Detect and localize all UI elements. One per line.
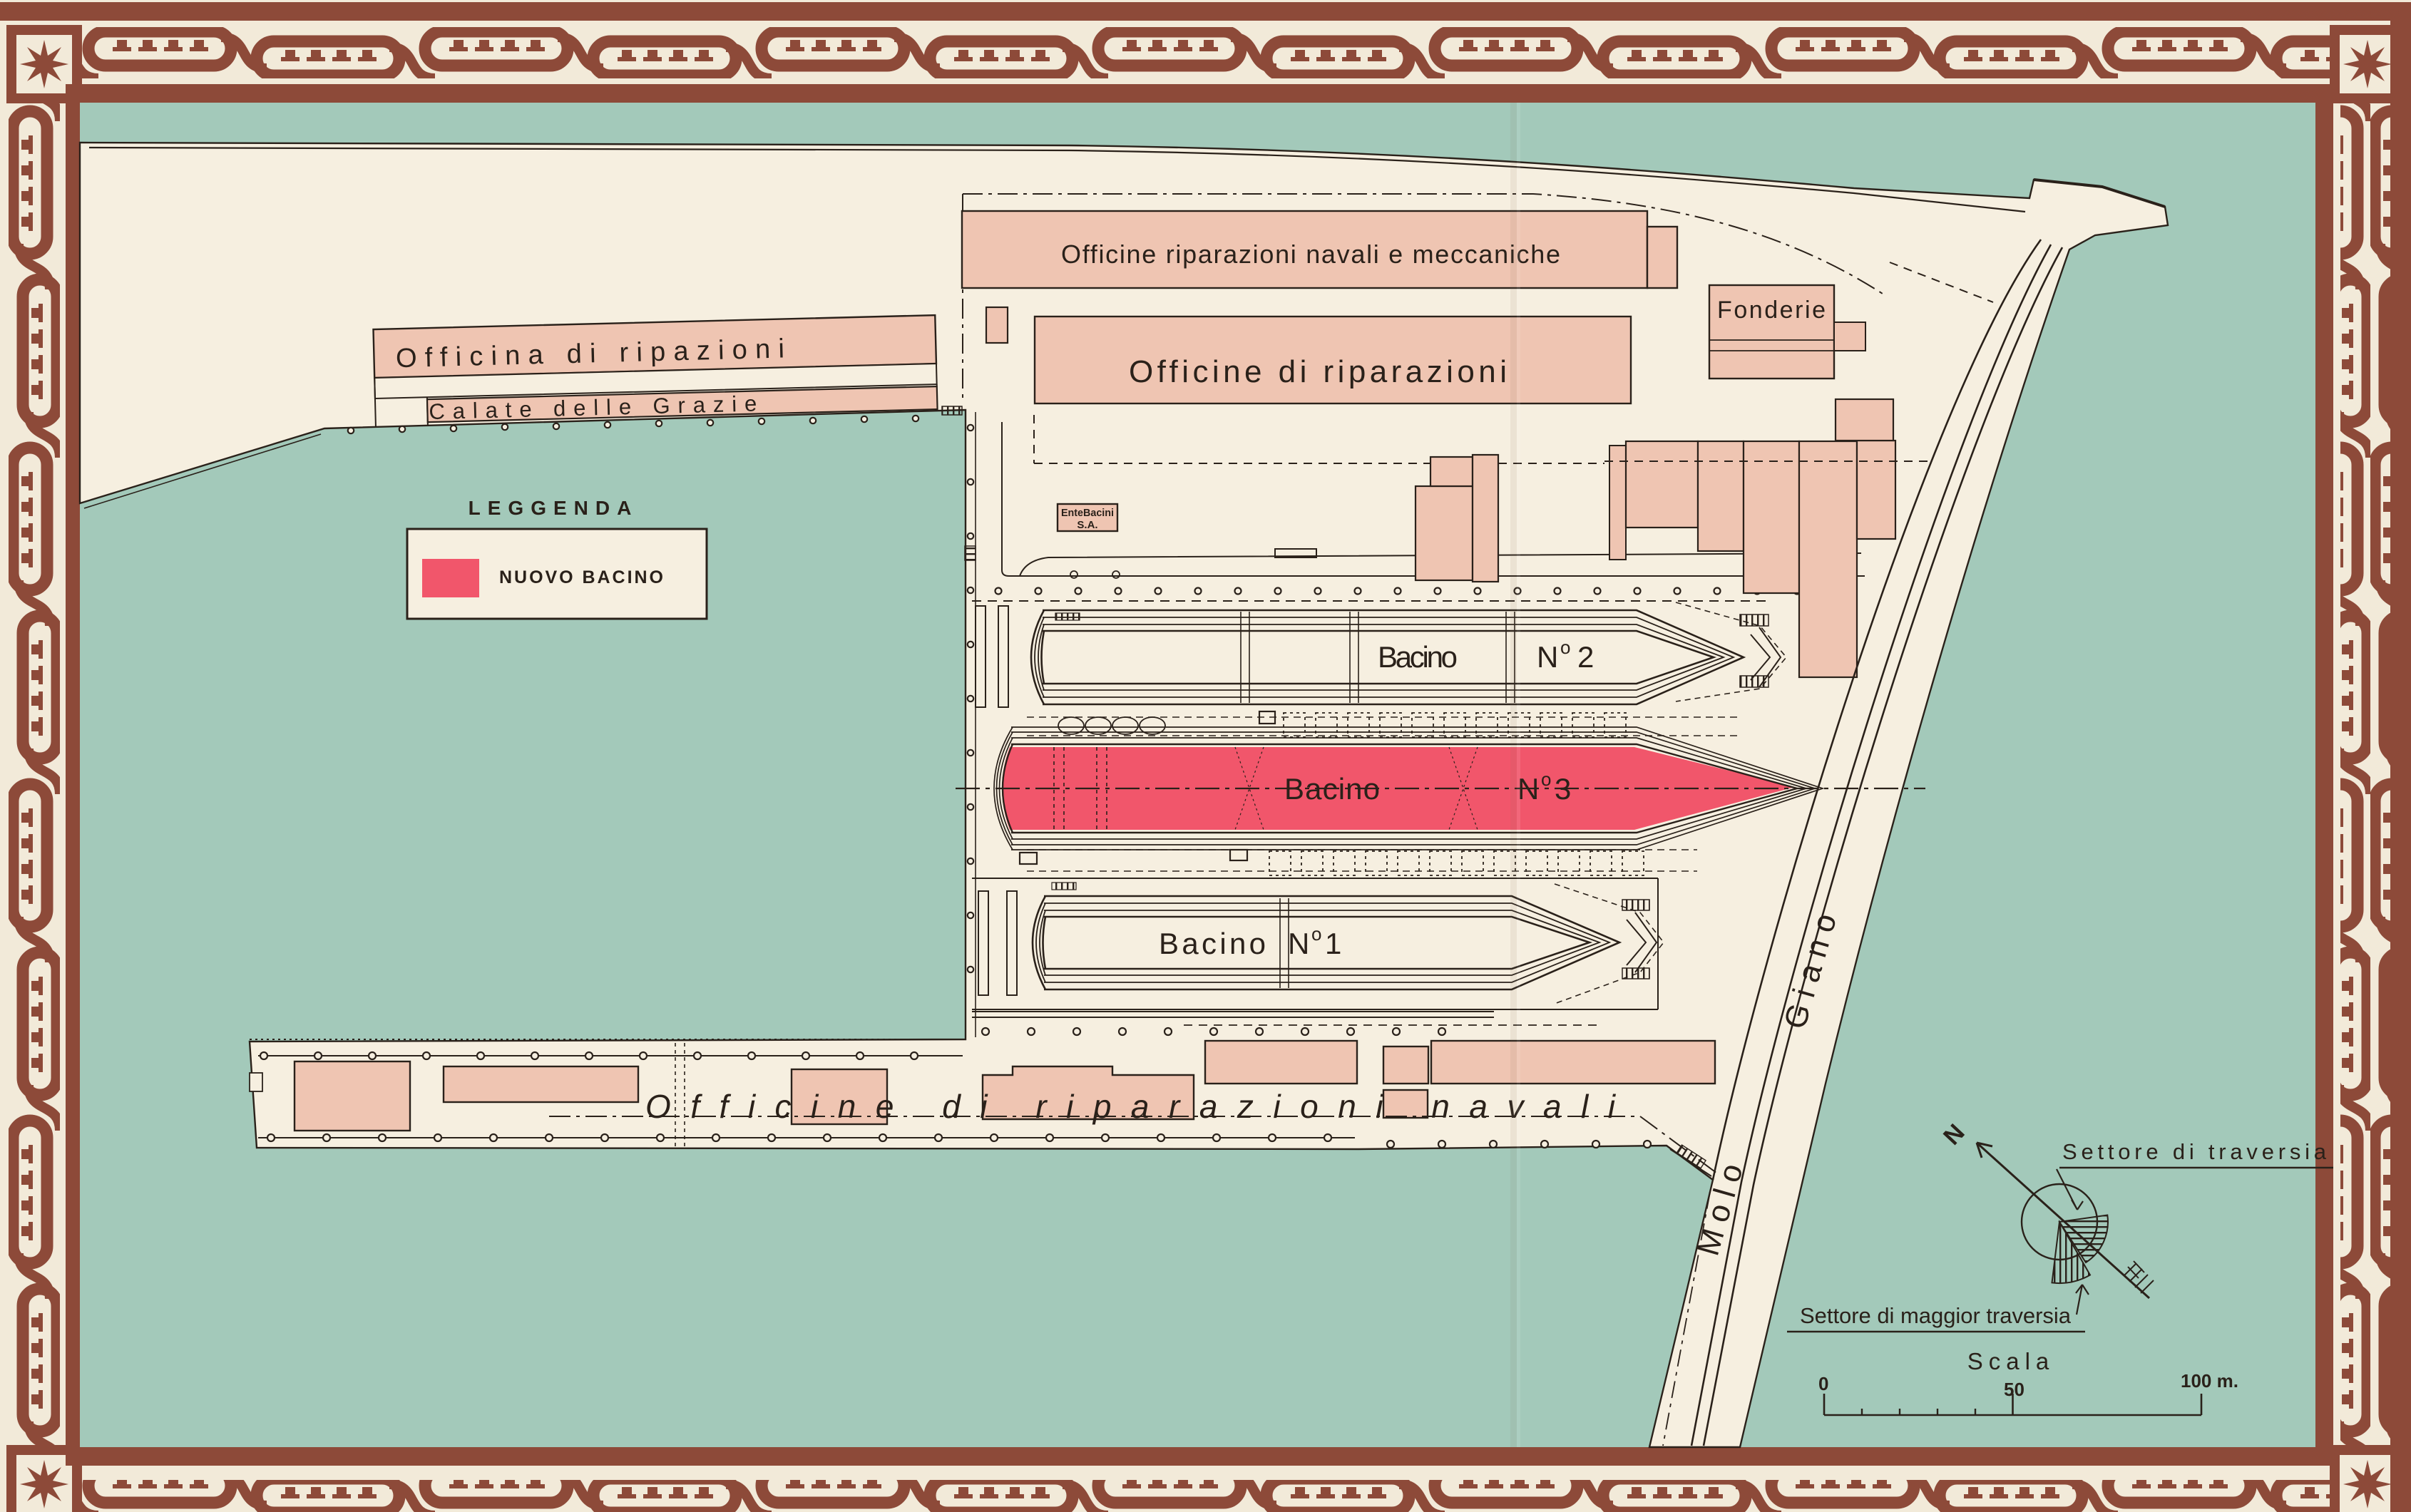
svg-text:Fonderie: Fonderie: [1717, 297, 1826, 324]
svg-text:2: 2: [1577, 640, 1594, 674]
svg-text:3: 3: [1555, 772, 1571, 806]
svg-text:Bacino: Bacino: [1284, 772, 1380, 806]
svg-text:N: N: [1537, 640, 1558, 674]
svg-text:o: o: [1541, 768, 1551, 790]
svg-text:Officine di riparazioni: Officine di riparazioni: [1129, 354, 1507, 389]
svg-text:Officine di riparazioni navali: Officine di riparazioni navali: [645, 1088, 1617, 1125]
svg-text:Bacino: Bacino: [1159, 927, 1266, 960]
svg-text:100 m.: 100 m.: [2181, 1370, 2238, 1392]
svg-text:Bacino: Bacino: [1378, 640, 1458, 674]
svg-text:LEGGENDA: LEGGENDA: [469, 497, 639, 519]
svg-text:Officine riparazioni navali e: Officine riparazioni navali e meccaniche: [1061, 240, 1560, 269]
svg-text:S.A.: S.A.: [1077, 519, 1097, 531]
svg-text:o: o: [1311, 923, 1321, 945]
svg-text:N: N: [1288, 927, 1309, 960]
svg-text:Settore di maggior traversia: Settore di maggior traversia: [1800, 1303, 2072, 1328]
svg-text:50: 50: [2004, 1379, 2024, 1400]
svg-text:N: N: [1517, 772, 1539, 806]
svg-text:EnteBacini: EnteBacini: [1061, 507, 1114, 519]
svg-text:o: o: [1560, 637, 1570, 658]
svg-text:Scala: Scala: [1967, 1348, 2055, 1374]
svg-text:1: 1: [1325, 927, 1341, 960]
svg-text:0: 0: [1818, 1373, 1828, 1394]
